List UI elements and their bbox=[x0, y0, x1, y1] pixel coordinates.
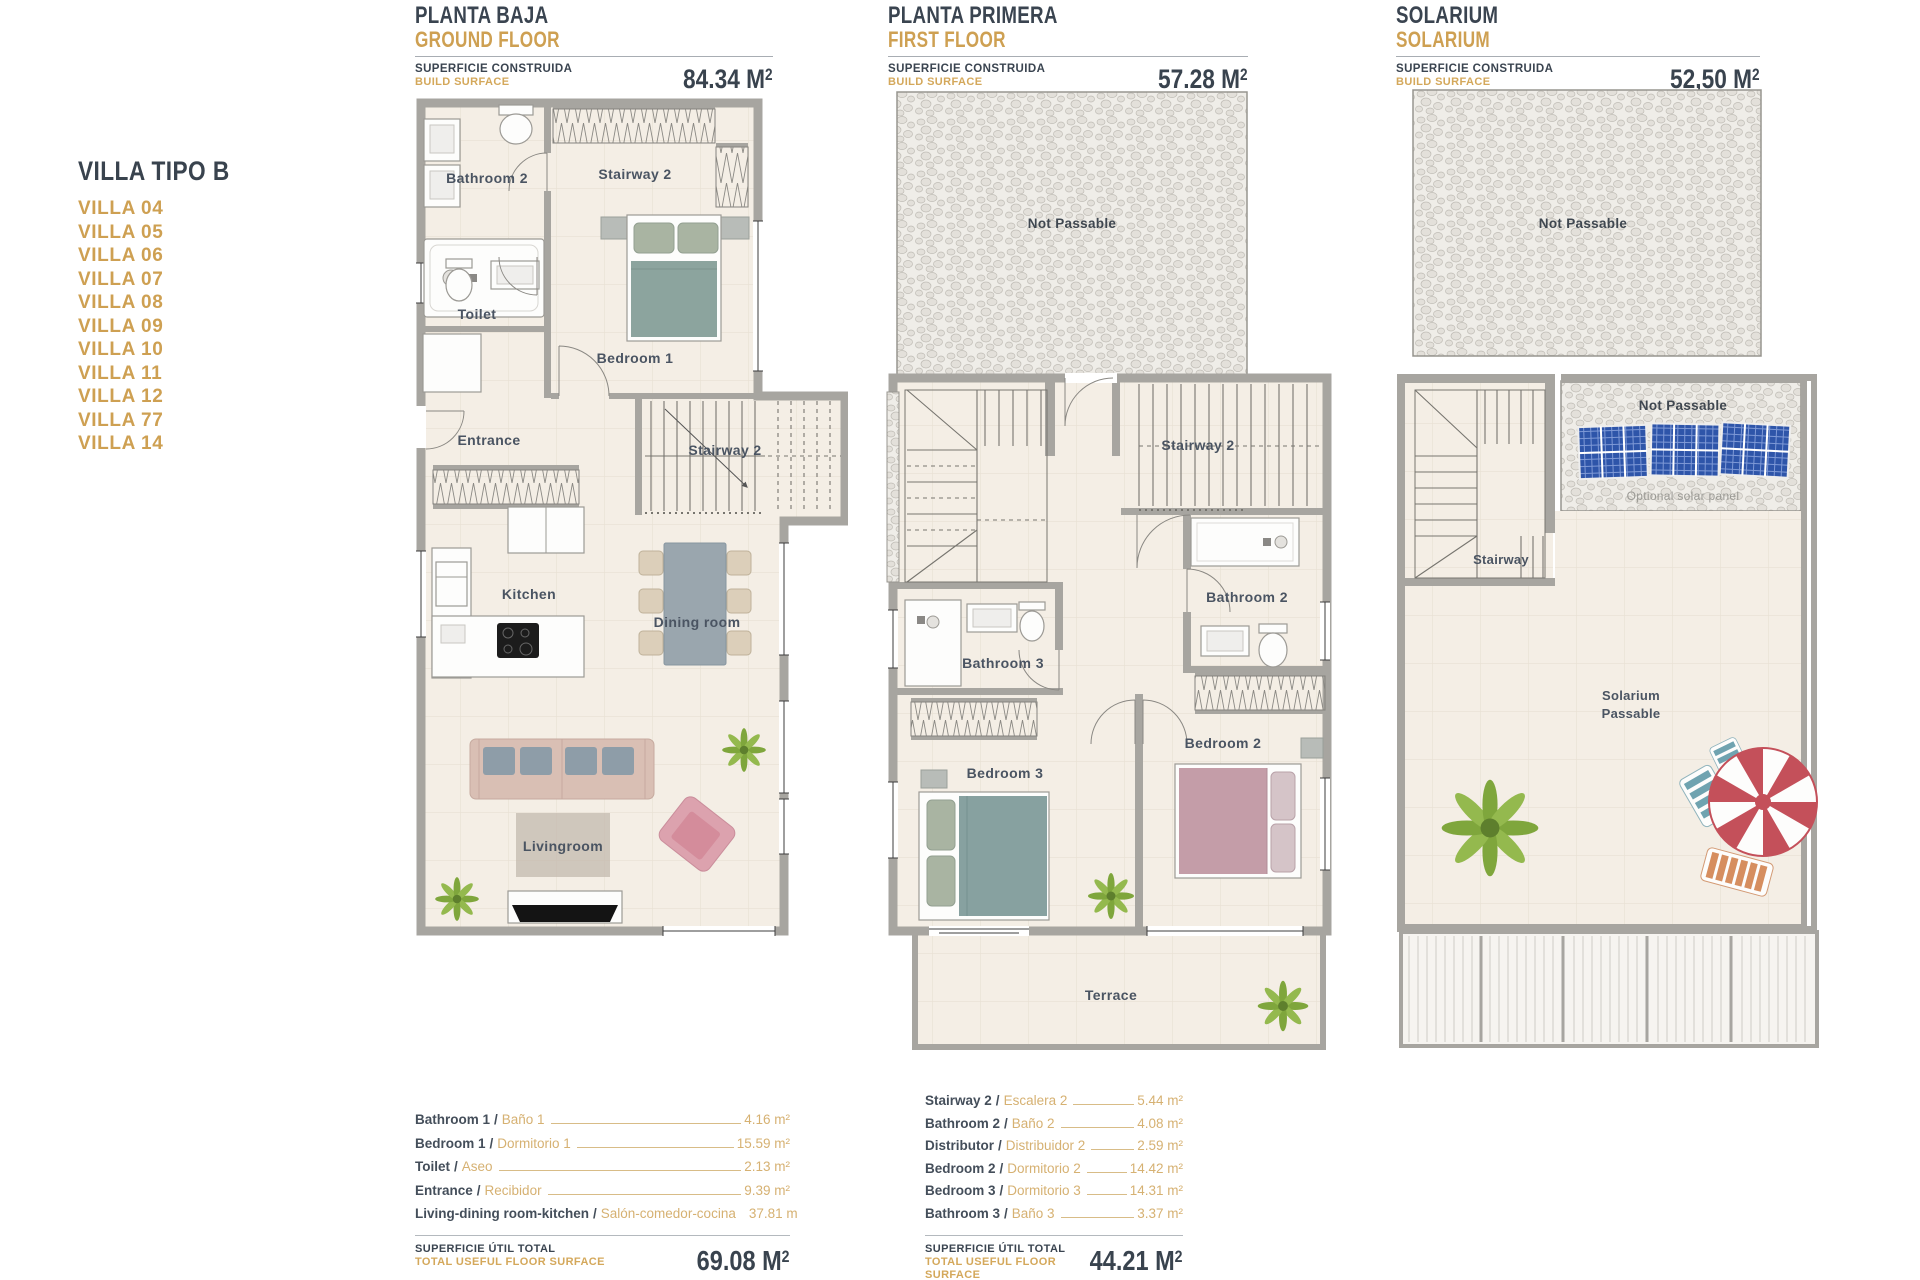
header-title-es: SOLARIUM bbox=[1396, 4, 1680, 28]
dining-set bbox=[639, 543, 751, 665]
label-optional-solar: Optional solar panel bbox=[1627, 489, 1740, 503]
table-row: Distributor/ Distribuidor 2 2.59 m² bbox=[925, 1135, 1183, 1158]
wardrobe-hatch bbox=[1195, 676, 1325, 710]
room-label-bathroom2: Bathroom 2 bbox=[1206, 589, 1288, 605]
villa-list-item: VILLA 08 bbox=[78, 291, 318, 315]
villa-list-item: VILLA 77 bbox=[78, 409, 318, 433]
wardrobe-hatch bbox=[433, 470, 579, 504]
first-floor-plan: Not Passable Stairway 2 Bathroom 2 Bathr… bbox=[885, 90, 1333, 1070]
solarium-plan: Not Passable Not Passable Optional solar… bbox=[1385, 88, 1837, 1078]
pergola-slats bbox=[1401, 932, 1817, 1046]
room-label-bathroom2: Bathroom 2 bbox=[446, 170, 528, 186]
header-title-en: FIRST FLOOR bbox=[888, 28, 1169, 51]
floorplan-sheet: VILLA TIPO B VILLA 04 VILLA 05 VILLA 06 … bbox=[0, 0, 1920, 1280]
room-label-entrance: Entrance bbox=[457, 432, 520, 448]
total-label-en: TOTAL USEFUL FLOOR SURFACE bbox=[415, 1256, 605, 1269]
header-ground-floor: PLANTA BAJA GROUND FLOOR SUPERFICIE CONS… bbox=[415, 4, 773, 93]
surface-label-en: BUILD SURFACE bbox=[415, 76, 572, 89]
table-row: Toilet/ Aseo 2.13 m² bbox=[415, 1155, 790, 1179]
header-rule bbox=[415, 56, 773, 57]
table-row: Bathroom 1/ Baño 1 4.16 m² bbox=[415, 1108, 790, 1132]
room-label-kitchen: Kitchen bbox=[502, 586, 556, 602]
villa-list-item: VILLA 06 bbox=[78, 244, 318, 268]
surface-label-es: SUPERFICIE CONSTRUIDA bbox=[1396, 62, 1553, 76]
header-title-en: GROUND FLOOR bbox=[415, 28, 694, 51]
label-not-passable: Not Passable bbox=[1028, 216, 1117, 231]
umbrella-icon bbox=[1709, 748, 1817, 856]
room-label-stairway2-top: Stairway 2 bbox=[598, 166, 671, 182]
total-surface-row: SUPERFICIE ÚTIL TOTAL TOTAL USEFUL FLOOR… bbox=[925, 1235, 1183, 1280]
surface-label-es: SUPERFICIE CONSTRUIDA bbox=[415, 62, 572, 76]
table-row: Bedroom 3/ Dormitorio 3 14.31 m² bbox=[925, 1180, 1183, 1203]
table-row: Bathroom 3/ Baño 3 3.37 m² bbox=[925, 1203, 1183, 1226]
wardrobe-hatch bbox=[553, 109, 715, 143]
total-surface-row: SUPERFICIE ÚTIL TOTAL TOTAL USEFUL FLOOR… bbox=[415, 1235, 790, 1275]
wardrobe-hatch bbox=[911, 702, 1037, 736]
total-surface-value: 69.08 M2 bbox=[697, 1243, 790, 1275]
total-label-es: SUPERFICIE ÚTIL TOTAL bbox=[925, 1243, 1072, 1257]
storage-closet bbox=[423, 334, 481, 392]
plant-icon bbox=[1088, 873, 1134, 919]
table-row: Entrance/ Recibidor 9.39 m² bbox=[415, 1179, 790, 1203]
surface-label-en: BUILD SURFACE bbox=[888, 76, 1045, 89]
room-label-stairway: Stairway bbox=[1473, 552, 1529, 567]
table-row: Stairway 2/ Escalera 2 5.44 m² bbox=[925, 1090, 1183, 1113]
room-label-passable: Passable bbox=[1602, 706, 1661, 721]
cooktop-icon bbox=[497, 623, 539, 658]
wall-slit bbox=[1807, 381, 1811, 926]
palm-plant-icon bbox=[1442, 780, 1539, 877]
room-label-bedroom3: Bedroom 3 bbox=[967, 765, 1044, 781]
total-surface-value: 44.21 M2 bbox=[1090, 1243, 1183, 1275]
tv-icon bbox=[512, 905, 618, 922]
header-first-floor: PLANTA PRIMERA FIRST FLOOR SUPERFICIE CO… bbox=[888, 4, 1248, 93]
villa-list-item: VILLA 04 bbox=[78, 197, 318, 221]
total-label-en: TOTAL USEFUL FLOOR SURFACE bbox=[925, 1256, 1072, 1280]
ground-floor-surface-table: Bathroom 1/ Baño 1 4.16 m² Bedroom 1/ Do… bbox=[415, 1108, 790, 1275]
header-title-es: PLANTA BAJA bbox=[415, 4, 694, 28]
wardrobe-hatch bbox=[716, 147, 748, 207]
table-row: Bedroom 1/ Dormitorio 1 15.59 m² bbox=[415, 1132, 790, 1156]
label-not-passable-top: Not Passable bbox=[1539, 216, 1628, 231]
room-label-solarium: Solarium bbox=[1602, 688, 1660, 703]
room-label-bathroom3: Bathroom 3 bbox=[962, 655, 1044, 671]
entrance-door-opening bbox=[416, 406, 426, 448]
surface-label-es: SUPERFICIE CONSTRUIDA bbox=[888, 62, 1045, 76]
header-title-en: SOLARIUM bbox=[1396, 28, 1680, 51]
solar-panels-icon bbox=[1578, 422, 1790, 479]
header-title-es: PLANTA PRIMERA bbox=[888, 4, 1169, 28]
villa-list-item: VILLA 09 bbox=[78, 315, 318, 339]
villa-list-item: VILLA 11 bbox=[78, 362, 318, 386]
room-label-terrace: Terrace bbox=[1085, 987, 1137, 1003]
label-not-passable-panels: Not Passable bbox=[1639, 398, 1728, 413]
villa-type-title: VILLA TIPO B bbox=[78, 156, 280, 187]
table-row: Bathroom 2/ Baño 2 4.08 m² bbox=[925, 1113, 1183, 1136]
header-rule bbox=[888, 56, 1248, 57]
header-solarium: SOLARIUM SOLARIUM SUPERFICIE CONSTRUIDA … bbox=[1396, 4, 1760, 93]
villa-list-item: VILLA 12 bbox=[78, 385, 318, 409]
table-row: Living-dining room-kitchen/ Salón-comedo… bbox=[415, 1202, 790, 1226]
room-label-bedroom2: Bedroom 2 bbox=[1185, 735, 1262, 751]
header-rule bbox=[1396, 56, 1760, 57]
stair-block-floor bbox=[1405, 381, 1553, 581]
room-label-livingroom: Livingroom bbox=[523, 838, 603, 854]
room-label-stairway2: Stairway 2 bbox=[688, 442, 761, 458]
plant-icon bbox=[722, 728, 766, 772]
plant-icon bbox=[435, 877, 479, 921]
wall bbox=[1561, 374, 1801, 383]
room-label-toilet: Toilet bbox=[458, 306, 497, 322]
villa-list: VILLA 04 VILLA 05 VILLA 06 VILLA 07 VILL… bbox=[78, 197, 318, 456]
first-floor-surface-table: Stairway 2/ Escalera 2 5.44 m² Bathroom … bbox=[925, 1090, 1183, 1280]
built-surface-value: 84.34 M2 bbox=[683, 62, 773, 93]
room-label-stairway2: Stairway 2 bbox=[1161, 437, 1234, 453]
villa-type-block: VILLA TIPO B VILLA 04 VILLA 05 VILLA 06 … bbox=[78, 156, 318, 456]
not-passable-roof bbox=[897, 92, 1247, 376]
ground-floor-plan: Bathroom 2 Stairway 2 Toilet Bedroom 1 E… bbox=[413, 93, 848, 953]
table-row: Bedroom 2/ Dormitorio 2 14.42 m² bbox=[925, 1158, 1183, 1181]
villa-list-item: VILLA 07 bbox=[78, 268, 318, 292]
room-label-bedroom1: Bedroom 1 bbox=[597, 350, 674, 366]
plant-icon bbox=[1258, 981, 1309, 1032]
villa-list-item: VILLA 10 bbox=[78, 338, 318, 362]
villa-list-item: VILLA 14 bbox=[78, 432, 318, 456]
villa-list-item: VILLA 05 bbox=[78, 221, 318, 245]
built-surface-value: 57.28 M2 bbox=[1158, 62, 1248, 93]
total-label-es: SUPERFICIE ÚTIL TOTAL bbox=[415, 1243, 605, 1257]
room-label-dining: Dining room bbox=[654, 614, 741, 630]
